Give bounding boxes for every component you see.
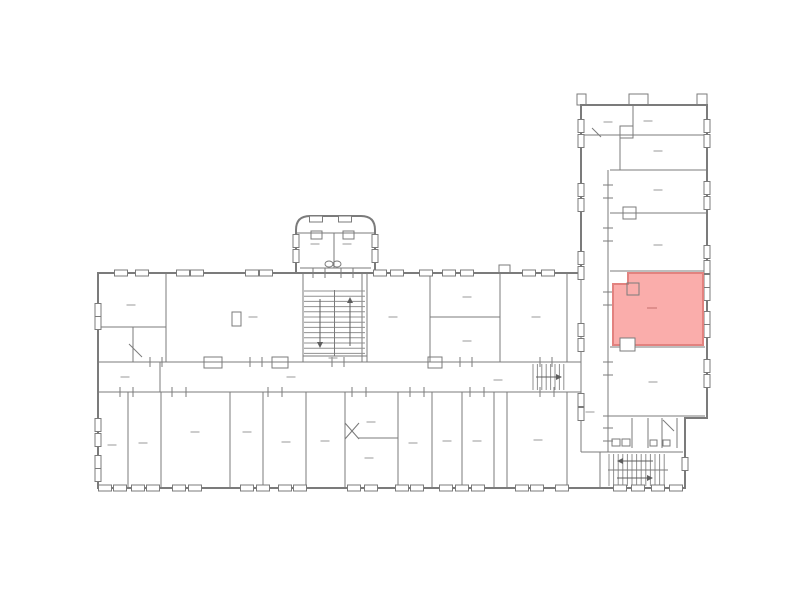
window-icon bbox=[704, 120, 710, 133]
column-box bbox=[622, 439, 630, 446]
column-box bbox=[311, 231, 322, 239]
stair-arrow-head-icon bbox=[317, 342, 323, 348]
window-icon bbox=[391, 270, 404, 276]
column-box bbox=[629, 94, 648, 105]
window-icon bbox=[99, 485, 112, 491]
window-icon bbox=[704, 246, 710, 259]
window-icon bbox=[420, 270, 433, 276]
door-swing bbox=[663, 420, 674, 431]
exterior-wall bbox=[296, 216, 375, 273]
window-icon bbox=[632, 485, 645, 491]
window-icon bbox=[348, 485, 361, 491]
window-icon bbox=[578, 135, 584, 148]
window-icon bbox=[704, 360, 710, 373]
window-icon bbox=[614, 485, 627, 491]
window-icon bbox=[132, 485, 145, 491]
window-icon bbox=[704, 288, 710, 301]
window-icon bbox=[578, 267, 584, 280]
window-icon bbox=[173, 485, 186, 491]
window-icon bbox=[578, 408, 584, 421]
window-icon bbox=[578, 252, 584, 265]
window-icon bbox=[461, 270, 474, 276]
sink-fixture-icon bbox=[325, 261, 333, 267]
window-icon bbox=[191, 270, 204, 276]
window-icon bbox=[472, 485, 485, 491]
column-box bbox=[697, 94, 707, 105]
column-box bbox=[663, 440, 670, 446]
window-icon bbox=[578, 339, 584, 352]
window-icon bbox=[578, 184, 584, 197]
window-icon bbox=[578, 199, 584, 212]
window-icon bbox=[310, 216, 323, 222]
window-icon bbox=[516, 485, 529, 491]
door-swing bbox=[129, 344, 142, 357]
window-icon bbox=[542, 270, 555, 276]
window-icon bbox=[704, 197, 710, 210]
window-icon bbox=[95, 419, 101, 432]
window-icon bbox=[704, 182, 710, 195]
window-icon bbox=[147, 485, 160, 491]
column-box bbox=[232, 312, 241, 326]
window-icon bbox=[704, 325, 710, 338]
window-icon bbox=[372, 235, 378, 248]
window-icon bbox=[396, 485, 409, 491]
window-icon bbox=[578, 394, 584, 407]
window-icon bbox=[531, 485, 544, 491]
window-icon bbox=[95, 304, 101, 317]
window-icon bbox=[704, 312, 710, 325]
window-icon bbox=[95, 456, 101, 469]
window-icon bbox=[115, 270, 128, 276]
window-icon bbox=[411, 485, 424, 491]
window-icon bbox=[456, 485, 469, 491]
window-icon bbox=[704, 261, 710, 274]
window-icon bbox=[578, 324, 584, 337]
window-icon bbox=[294, 485, 307, 491]
stair-arrow-head-icon bbox=[347, 297, 353, 303]
column-box bbox=[343, 231, 354, 239]
window-icon bbox=[652, 485, 665, 491]
window-icon bbox=[670, 485, 683, 491]
window-icon bbox=[241, 485, 254, 491]
column-box bbox=[620, 126, 633, 138]
column-box bbox=[612, 439, 620, 446]
window-icon bbox=[556, 485, 569, 491]
door-swing bbox=[592, 128, 601, 137]
window-icon bbox=[443, 270, 456, 276]
column-box bbox=[620, 338, 635, 351]
window-icon bbox=[682, 458, 688, 471]
window-icon bbox=[374, 270, 387, 276]
window-icon bbox=[372, 250, 378, 263]
window-icon bbox=[279, 485, 292, 491]
column-box bbox=[499, 265, 510, 273]
window-icon bbox=[177, 270, 190, 276]
window-icon bbox=[136, 270, 149, 276]
column-box bbox=[577, 94, 586, 105]
window-icon bbox=[578, 120, 584, 133]
window-icon bbox=[114, 485, 127, 491]
window-icon bbox=[189, 485, 202, 491]
window-icon bbox=[365, 485, 378, 491]
window-icon bbox=[704, 275, 710, 288]
column-box bbox=[650, 440, 657, 446]
window-icon bbox=[95, 434, 101, 447]
window-icon bbox=[95, 469, 101, 482]
window-icon bbox=[440, 485, 453, 491]
floorplan-svg bbox=[0, 0, 800, 595]
window-icon bbox=[339, 216, 352, 222]
window-icon bbox=[246, 270, 259, 276]
window-icon bbox=[293, 235, 299, 248]
window-icon bbox=[523, 270, 536, 276]
window-icon bbox=[704, 375, 710, 388]
floorplan-page bbox=[0, 0, 800, 595]
window-icon bbox=[260, 270, 273, 276]
window-icon bbox=[704, 135, 710, 148]
window-icon bbox=[95, 317, 101, 330]
window-icon bbox=[293, 250, 299, 263]
window-icon bbox=[257, 485, 270, 491]
